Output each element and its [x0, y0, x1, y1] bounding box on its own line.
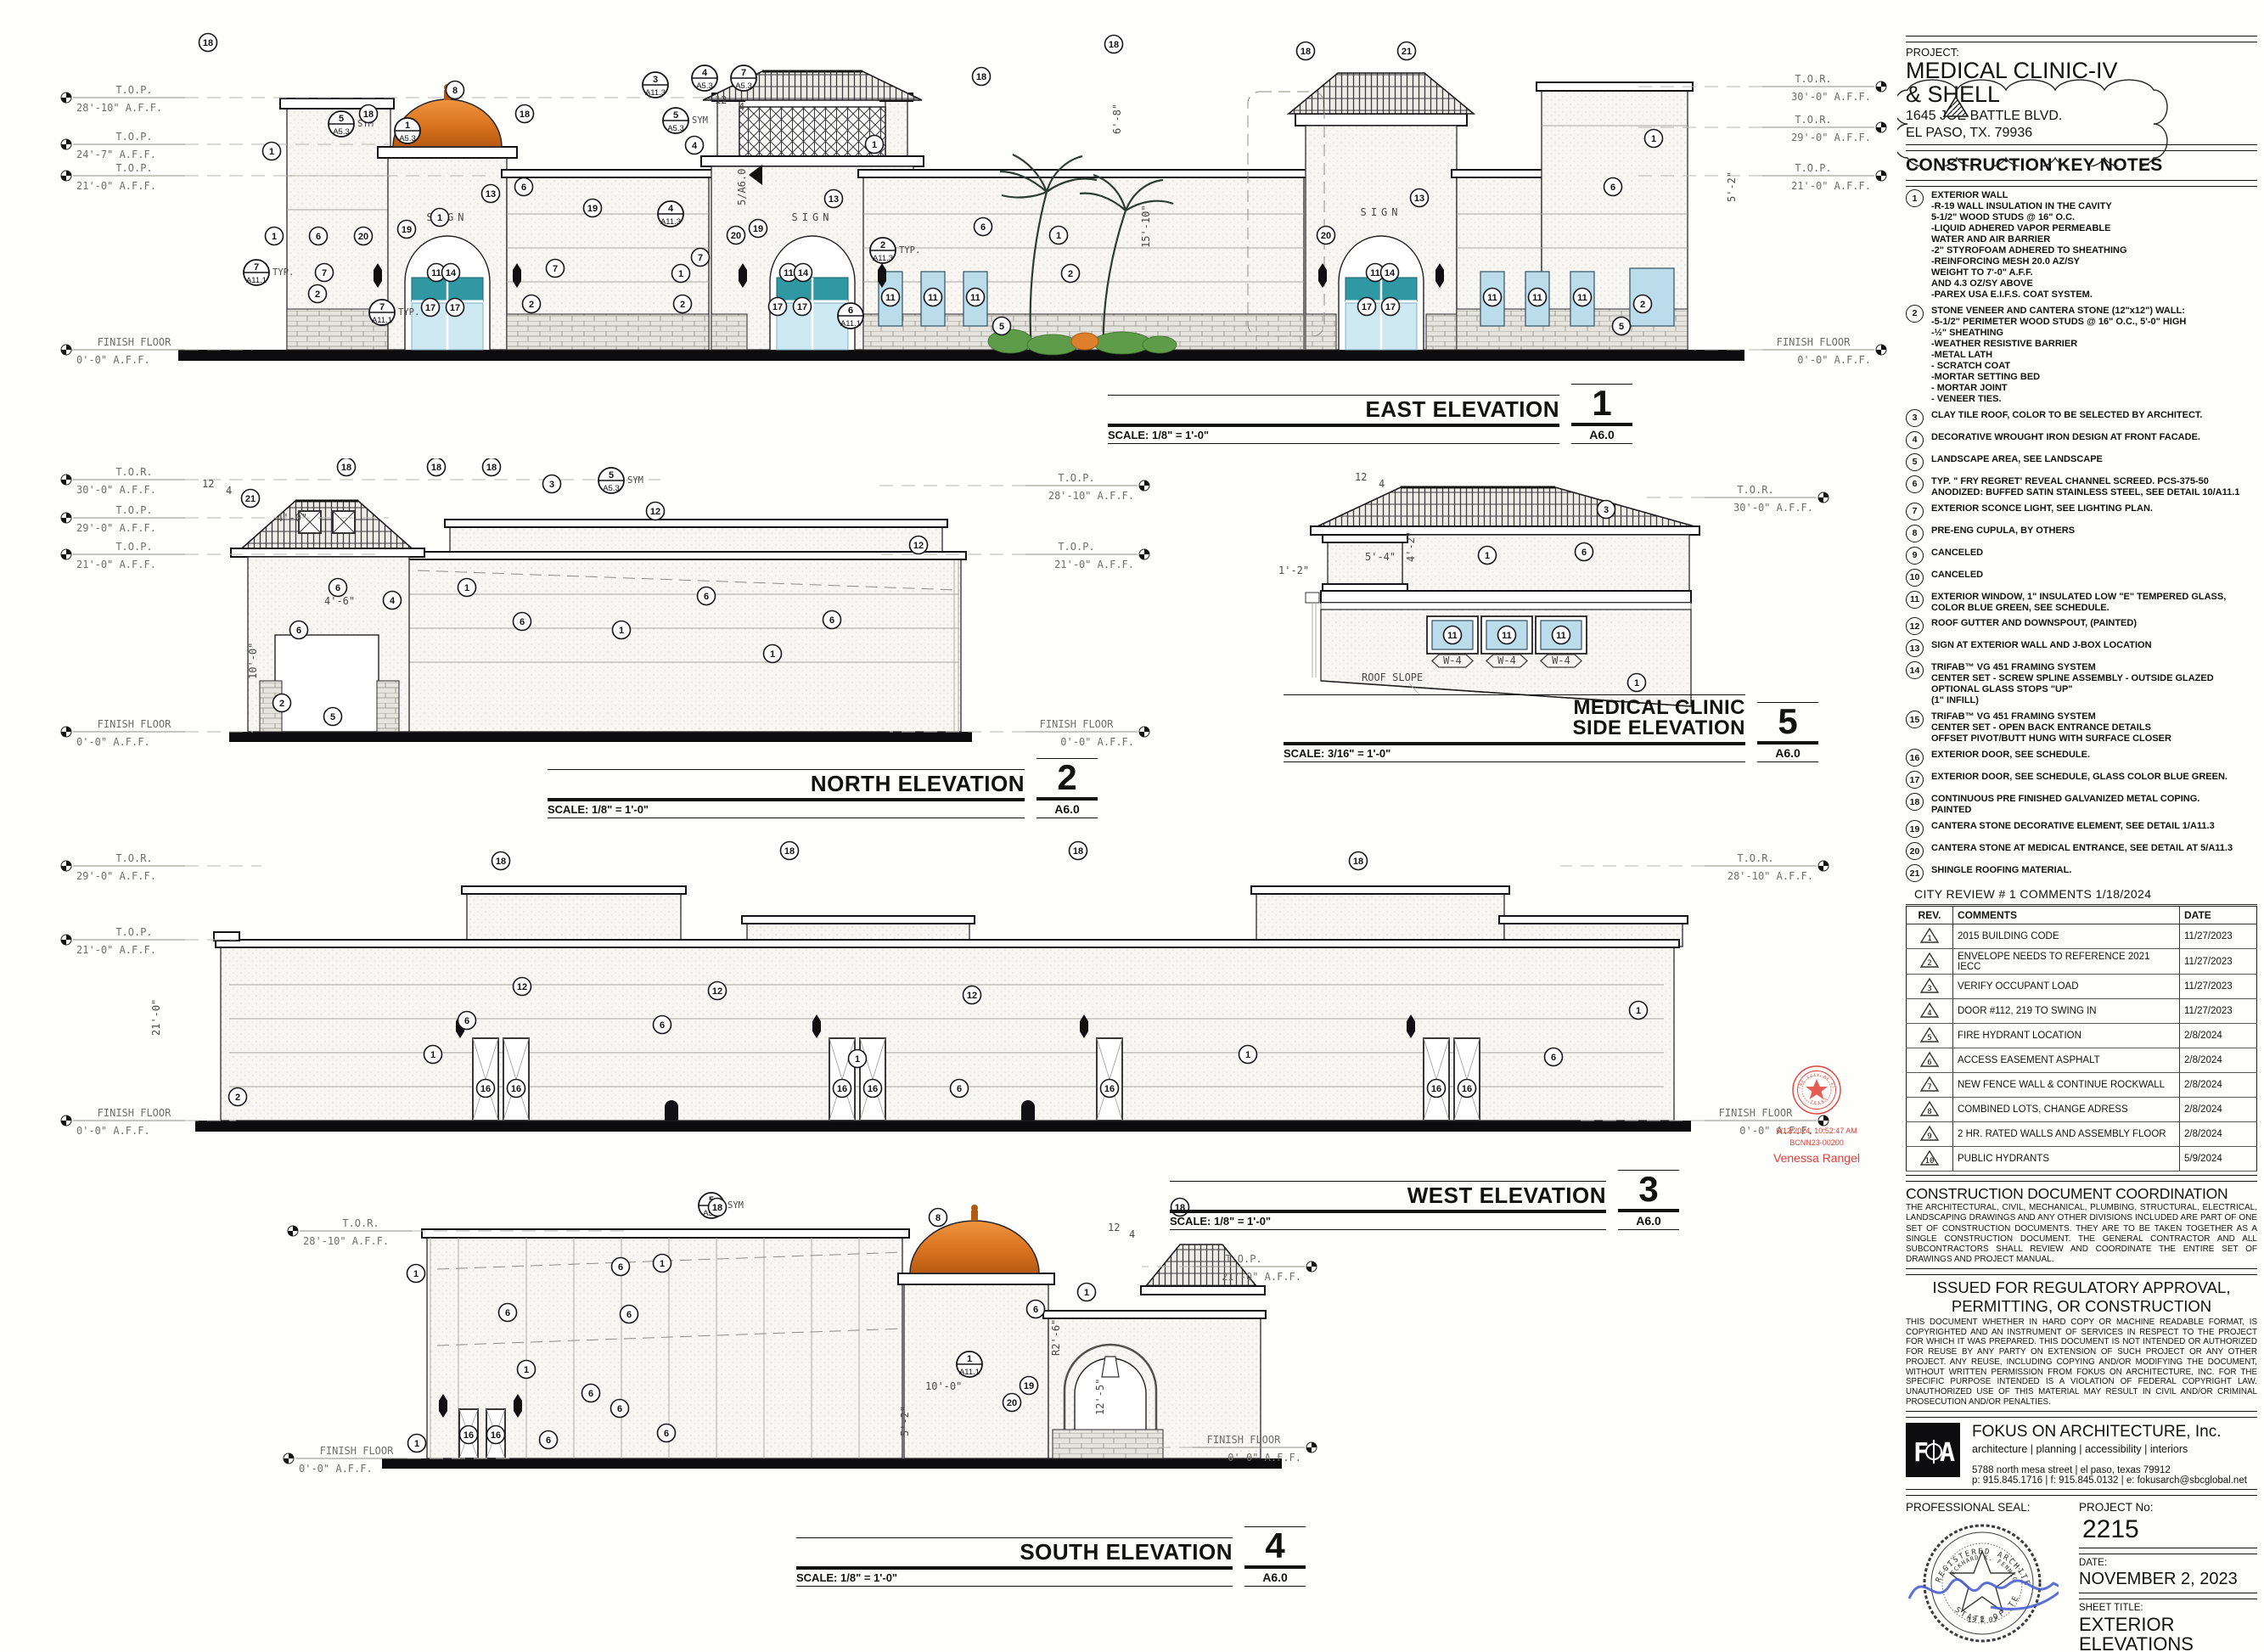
- detail-number: 1: [1571, 385, 1632, 426]
- svg-text:28'-10" A.F.F.: 28'-10" A.F.F.: [1048, 490, 1134, 502]
- svg-text:4: 4: [1129, 1228, 1135, 1240]
- revision-row: 5FIRE HYDRANT LOCATION2/8/2024: [1907, 1024, 2257, 1048]
- project-no-label: PROJECT No:: [2079, 1501, 2257, 1514]
- firm-contact: p: 915.845.1716 | f: 915.845.0132 | e: f…: [1972, 1475, 2247, 1486]
- coordination-title: CONSTRUCTION DOCUMENT COORDINATION: [1906, 1185, 2257, 1203]
- svg-text:T.O.R.: T.O.R.: [1795, 73, 1831, 85]
- svg-text:20: 20: [731, 231, 741, 241]
- svg-text:29'-0" A.F.F.: 29'-0" A.F.F.: [76, 522, 156, 534]
- svg-text:SIGN: SIGN: [792, 211, 834, 223]
- svg-text:16: 16: [1104, 1084, 1115, 1094]
- divider: [2079, 1593, 2257, 1599]
- revision-header-row: REV. COMMENTS DATE: [1907, 906, 2257, 924]
- svg-text:A11.1: A11.1: [840, 319, 861, 329]
- svg-text:11: 11: [1556, 631, 1566, 641]
- svg-text:T.O.P.: T.O.P.: [1225, 1253, 1261, 1265]
- svg-text:2: 2: [1068, 269, 1073, 279]
- east-elevation-title: EAST ELEVATION SCALE: 1/8" = 1'-0" 1 A6.…: [1108, 384, 1632, 444]
- svg-text:A5.3: A5.3: [399, 134, 416, 143]
- svg-text:18: 18: [712, 1203, 722, 1213]
- svg-text:4: 4: [1927, 1009, 1931, 1018]
- west-elevation-drawing: T.O.R.29'-0" A.F.F.T.O.P.21'-0" A.F.F.FI…: [25, 840, 1859, 1180]
- svg-text:T.O.R.: T.O.R.: [1737, 484, 1773, 496]
- rev-triangle-icon: 5: [1919, 1026, 1940, 1043]
- firm-block: F A FOKUS ON ARCHITECTURE, Inc. architec…: [1906, 1423, 2257, 1486]
- svg-text:W-4: W-4: [1497, 655, 1516, 666]
- svg-text:20: 20: [1007, 1398, 1017, 1408]
- svg-text:21'-0" A.F.F.: 21'-0" A.F.F.: [76, 180, 156, 192]
- svg-text:T.O.P.: T.O.P.: [115, 504, 152, 516]
- svg-text:29'-0" A.F.F.: 29'-0" A.F.F.: [1791, 132, 1871, 143]
- svg-text:1'-2": 1'-2": [1278, 565, 1309, 576]
- svg-text:FINISH FLOOR: FINISH FLOOR: [98, 336, 171, 348]
- divider: [2079, 1548, 2257, 1554]
- svg-text:1: 1: [524, 1365, 529, 1375]
- svg-text:19: 19: [402, 225, 412, 235]
- svg-text:2: 2: [279, 699, 284, 709]
- svg-text:17: 17: [772, 302, 783, 312]
- stamp-permit-number: BCNN23-00200: [1757, 1138, 1876, 1147]
- svg-text:2: 2: [680, 300, 685, 310]
- svg-text:12: 12: [712, 986, 722, 997]
- svg-text:4: 4: [226, 485, 232, 497]
- svg-text:A11.3: A11.3: [660, 217, 681, 227]
- north-elevation-title: NORTH ELEVATION SCALE: 1/8" = 1'-0" 2 A6…: [548, 758, 1098, 818]
- svg-text:1: 1: [1084, 1288, 1089, 1298]
- svg-text:21: 21: [1402, 47, 1412, 57]
- key-note: 11EXTERIOR WINDOW, 1" INSULATED LOW "E" …: [1906, 592, 2257, 614]
- svg-text:6: 6: [335, 583, 340, 593]
- svg-text:0'-0" A.F.F.: 0'-0" A.F.F.: [76, 1125, 150, 1137]
- divider: [1906, 180, 2257, 187]
- svg-text:12: 12: [202, 478, 214, 490]
- svg-text:FINISH FLOOR: FINISH FLOOR: [1040, 718, 1114, 730]
- svg-text:11: 11: [1487, 293, 1497, 303]
- svg-text:4: 4: [1379, 478, 1385, 490]
- sheet-ref: A6.0: [1618, 1212, 1679, 1229]
- svg-text:13: 13: [486, 189, 496, 199]
- svg-text:6: 6: [704, 592, 709, 602]
- svg-text:1: 1: [619, 626, 624, 636]
- revision-row: 10PUBLIC HYDRANTS5/9/2024: [1907, 1147, 2257, 1172]
- key-note: 10CANCELED: [1906, 570, 2257, 587]
- detail-number: 4: [1244, 1527, 1306, 1569]
- svg-text:17: 17: [1362, 302, 1372, 312]
- svg-text:1: 1: [269, 147, 274, 157]
- svg-text:5: 5: [339, 114, 344, 124]
- svg-text:7: 7: [322, 268, 327, 278]
- svg-text:W-4: W-4: [1443, 655, 1462, 666]
- sheet-title: EXTERIOR ELEVATIONS: [2079, 1615, 2257, 1652]
- foa-logo: F A: [1906, 1423, 1960, 1477]
- svg-text:T.O.R.: T.O.R.: [342, 1217, 379, 1229]
- svg-text:6: 6: [617, 1404, 622, 1414]
- svg-text:24'-7" A.F.F.: 24'-7" A.F.F.: [76, 149, 156, 160]
- svg-text:A11.3: A11.3: [873, 254, 893, 263]
- svg-text:4: 4: [739, 101, 744, 113]
- svg-text:30'-0" A.F.F.: 30'-0" A.F.F.: [1733, 502, 1813, 514]
- svg-text:18: 18: [341, 463, 351, 473]
- svg-text:FINISH FLOOR: FINISH FLOOR: [1207, 1434, 1281, 1446]
- divider: [1906, 1175, 2257, 1182]
- svg-text:5: 5: [1619, 322, 1624, 332]
- svg-text:4: 4: [702, 68, 708, 78]
- svg-text:3: 3: [1927, 985, 1931, 993]
- svg-text:18: 18: [1073, 846, 1083, 857]
- svg-text:6'-8": 6'-8": [1111, 104, 1123, 134]
- detail-number: 2: [1036, 759, 1098, 801]
- divider: [1906, 1411, 2257, 1418]
- svg-text:18: 18: [520, 110, 530, 120]
- rev-triangle-icon: 1: [1919, 927, 1940, 944]
- svg-text:A5.3: A5.3: [667, 124, 684, 133]
- svg-text:18: 18: [496, 857, 506, 867]
- svg-text:0'-0" A.F.F.: 0'-0" A.F.F.: [299, 1463, 373, 1475]
- scale-south: SCALE: 1/8" = 1'-0": [796, 1570, 1233, 1587]
- city-review-note: CITY REVIEW # 1 COMMENTS 1/18/2024: [1914, 887, 2257, 901]
- svg-text:A5.3: A5.3: [603, 484, 620, 493]
- svg-text:2: 2: [529, 300, 534, 310]
- svg-text:2: 2: [1640, 300, 1645, 310]
- svg-text:30'-0" A.F.F.: 30'-0" A.F.F.: [76, 484, 156, 496]
- svg-text:16: 16: [480, 1084, 491, 1094]
- svg-text:8: 8: [1927, 1108, 1931, 1116]
- svg-text:18: 18: [1353, 857, 1363, 867]
- svg-text:18: 18: [976, 72, 986, 82]
- svg-text:FINISH FLOOR: FINISH FLOOR: [320, 1445, 394, 1457]
- svg-text:FINISH FLOOR: FINISH FLOOR: [98, 718, 171, 730]
- svg-text:21: 21: [245, 494, 256, 504]
- title-east: EAST ELEVATION: [1108, 398, 1559, 427]
- date-label: DATE:: [2079, 1558, 2257, 1568]
- svg-text:11: 11: [1370, 268, 1380, 278]
- svg-text:3: 3: [653, 75, 658, 85]
- scale-north: SCALE: 1/8" = 1'-0": [548, 801, 1025, 818]
- svg-text:18: 18: [784, 846, 795, 857]
- revision-row: 8COMBINED LOTS, CHANGE ADRESS2/8/2024: [1907, 1098, 2257, 1122]
- svg-text:30'-0" A.F.F.: 30'-0" A.F.F.: [1791, 91, 1871, 103]
- svg-text:1: 1: [413, 1269, 419, 1279]
- svg-text:6: 6: [1581, 548, 1587, 558]
- svg-text:1: 1: [1245, 1050, 1250, 1060]
- sheet-ref: A6.0: [1244, 1569, 1306, 1586]
- date-value: NOVEMBER 2, 2023: [2079, 1570, 2257, 1589]
- rev-triangle-icon: 8: [1919, 1100, 1940, 1117]
- svg-text:16: 16: [868, 1084, 878, 1094]
- svg-text:1: 1: [464, 583, 469, 593]
- revision-cloud: [1897, 71, 2186, 166]
- key-note: 4DECORATIVE WROUGHT IRON DESIGN AT FRONT…: [1906, 432, 2257, 449]
- sheet-ref: A6.0: [1036, 801, 1098, 818]
- svg-text:A11.1: A11.1: [959, 1368, 980, 1377]
- svg-text:11: 11: [1532, 293, 1542, 303]
- svg-text:2: 2: [235, 1093, 240, 1103]
- key-note: 19CANTERA STONE DECORATIVE ELEMENT, SEE …: [1906, 821, 2257, 838]
- svg-text:6: 6: [660, 1020, 665, 1031]
- scale-west: SCALE: 1/8" = 1'-0": [1170, 1213, 1606, 1230]
- key-note: 14TRIFAB™ VG 451 FRAMING SYSTEM CENTER S…: [1906, 662, 2257, 706]
- svg-text:6: 6: [626, 1310, 632, 1320]
- svg-text:6: 6: [464, 1016, 469, 1026]
- svg-text:2: 2: [1927, 959, 1931, 968]
- firm-tagline: architecture | planning | accessibility …: [1972, 1443, 2247, 1455]
- svg-text:3: 3: [549, 480, 554, 490]
- svg-text:5'-2": 5'-2": [899, 1406, 911, 1436]
- key-note: 13SIGN AT EXTERIOR WALL AND J-BOX LOCATI…: [1906, 640, 2257, 657]
- svg-text:11: 11: [1577, 293, 1587, 303]
- svg-text:20: 20: [358, 232, 368, 242]
- city-approval-stamp: THE CITY OF EL PASO TEXAS 6/12/2024, 10:…: [1757, 1063, 1876, 1165]
- svg-text:16: 16: [491, 1430, 501, 1441]
- svg-text:11: 11: [928, 293, 938, 303]
- svg-text:15'-10": 15'-10": [1140, 205, 1152, 248]
- project-no: 2215: [2082, 1515, 2257, 1544]
- svg-text:T.O.R.: T.O.R.: [115, 852, 152, 864]
- svg-text:7: 7: [379, 302, 385, 312]
- svg-text:T.O.P.: T.O.P.: [115, 84, 152, 96]
- svg-text:W-4: W-4: [1552, 655, 1570, 666]
- svg-text:21'-0": 21'-0": [150, 999, 162, 1036]
- side-elevation-title: MEDICAL CLINIC SIDE ELEVATION SCALE: 3/1…: [1284, 694, 1818, 762]
- svg-text:6: 6: [316, 232, 321, 242]
- svg-text:1: 1: [405, 121, 410, 131]
- svg-text:1: 1: [430, 1050, 435, 1060]
- svg-text:5: 5: [673, 110, 678, 121]
- svg-text:T.O.R.: T.O.R.: [1737, 852, 1773, 864]
- svg-text:14: 14: [1385, 268, 1396, 278]
- svg-text:6: 6: [664, 1429, 669, 1439]
- svg-text:21'-0" A.F.F.: 21'-0" A.F.F.: [1222, 1271, 1301, 1283]
- svg-text:5: 5: [330, 712, 335, 722]
- svg-text:1: 1: [1927, 935, 1931, 943]
- svg-text:21'-0" A.F.F.: 21'-0" A.F.F.: [76, 944, 156, 956]
- svg-text:1: 1: [1634, 678, 1639, 688]
- svg-text:1: 1: [1056, 231, 1061, 241]
- svg-text:17: 17: [450, 303, 460, 313]
- svg-text:6: 6: [980, 222, 986, 233]
- svg-text:12: 12: [913, 541, 924, 551]
- rev-triangle-icon: 9: [1919, 1125, 1940, 1142]
- svg-text:5'-4": 5'-4": [1365, 551, 1396, 563]
- issued-title: ISSUED FOR REGULATORY APPROVAL, PERMITTI…: [1906, 1278, 2257, 1316]
- svg-text:18: 18: [486, 463, 497, 473]
- svg-text:6: 6: [505, 1308, 510, 1318]
- svg-text:21'-0" A.F.F.: 21'-0" A.F.F.: [1054, 559, 1134, 570]
- south-geometry: [382, 1205, 1282, 1469]
- svg-text:FINISH FLOOR: FINISH FLOOR: [1777, 336, 1851, 348]
- svg-text:T.O.P.: T.O.P.: [1795, 162, 1831, 174]
- svg-text:6: 6: [1927, 1059, 1931, 1067]
- svg-text:10'-0": 10'-0": [247, 643, 259, 679]
- svg-text:A5.3: A5.3: [333, 127, 350, 137]
- svg-text:17: 17: [425, 303, 435, 313]
- svg-text:8: 8: [452, 86, 458, 96]
- svg-text:T.O.P.: T.O.P.: [115, 926, 152, 938]
- rev-triangle-icon: 2: [1919, 952, 1940, 969]
- svg-text:4'-0": 4'-0": [277, 512, 307, 524]
- svg-text:28'-10" A.F.F.: 28'-10" A.F.F.: [76, 102, 162, 114]
- svg-text:0'-0" A.F.F.: 0'-0" A.F.F.: [1797, 354, 1871, 366]
- svg-text:SYM: SYM: [692, 115, 708, 126]
- revision-row: 3VERIFY OCCUPANT LOAD11/27/2023: [1907, 975, 2257, 999]
- svg-text:1: 1: [1636, 1006, 1641, 1016]
- svg-text:20: 20: [1321, 231, 1331, 241]
- svg-text:18: 18: [431, 463, 441, 473]
- stamp-datetime: 6/12/2024, 10:52:47 AM: [1757, 1127, 1876, 1135]
- svg-text:7: 7: [254, 262, 259, 273]
- svg-text:0'-0" A.F.F.: 0'-0" A.F.F.: [76, 736, 150, 748]
- divider: [1906, 1268, 2257, 1275]
- svg-text:T.O.P.: T.O.P.: [1058, 541, 1094, 553]
- svg-text:0'-0" A.F.F.: 0'-0" A.F.F.: [1228, 1452, 1301, 1464]
- svg-text:A5.3: A5.3: [735, 81, 752, 91]
- svg-text:TYP.: TYP.: [272, 267, 294, 278]
- svg-text:5/A6.0: 5/A6.0: [736, 169, 748, 205]
- svg-text:3: 3: [1604, 505, 1609, 515]
- west-elevation-title: WEST ELEVATION SCALE: 1/8" = 1'-0" 3 A6.…: [1170, 1170, 1679, 1230]
- svg-text:6: 6: [618, 1262, 623, 1273]
- svg-text:21'-0" A.F.F.: 21'-0" A.F.F.: [76, 559, 156, 570]
- divider: [1906, 1489, 2257, 1496]
- svg-text:16: 16: [1431, 1084, 1441, 1094]
- svg-text:12: 12: [967, 991, 977, 1001]
- revision-row: 12015 BUILDING CODE11/27/2023: [1907, 924, 2257, 949]
- sheet-ref: A6.0: [1757, 745, 1818, 761]
- svg-text:A11.1: A11.1: [372, 316, 392, 325]
- east-elevation-drawing: T.O.P.28'-10" A.F.F.T.O.P.24'-7" A.F.F.T…: [25, 25, 1893, 424]
- svg-text:19: 19: [587, 204, 598, 214]
- svg-text:4: 4: [668, 204, 674, 214]
- svg-text:6: 6: [1551, 1053, 1556, 1063]
- firm-name: FOKUS ON ARCHITECTURE, Inc.: [1972, 1423, 2247, 1441]
- svg-text:10: 10: [1925, 1157, 1935, 1166]
- svg-text:R2'-6": R2'-6": [1050, 1319, 1062, 1356]
- svg-text:5: 5: [1927, 1034, 1931, 1042]
- title-block-panel: PROJECT: MEDICAL CLINIC-IV & SHELL 1645 …: [1906, 32, 2257, 1652]
- revision-table: REV. COMMENTS DATE 12015 BUILDING CODE11…: [1906, 904, 2257, 1172]
- title-block-bottom: PROFESSIONAL SEAL: REGISTERED ARCHITECT …: [1906, 1499, 2257, 1652]
- key-note: 16EXTERIOR DOOR, SEE SCHEDULE.: [1906, 750, 2257, 767]
- svg-text:28'-10" A.F.F.: 28'-10" A.F.F.: [1727, 870, 1813, 882]
- svg-text:29'-0" A.F.F.: 29'-0" A.F.F.: [76, 870, 156, 882]
- svg-text:A11.3: A11.3: [645, 88, 666, 98]
- svg-text:18: 18: [203, 38, 213, 48]
- revision-row: 6ACCESS EASEMENT ASPHALT2/8/2024: [1907, 1048, 2257, 1073]
- svg-text:12: 12: [517, 982, 527, 992]
- drawing-sheet: T.O.P.28'-10" A.F.F.T.O.P.24'-7" A.F.F.T…: [0, 0, 2264, 1652]
- svg-text:FINISH FLOOR: FINISH FLOOR: [98, 1107, 171, 1119]
- svg-text:16: 16: [837, 1084, 847, 1094]
- svg-text:5: 5: [999, 322, 1004, 332]
- detail-number: 5: [1757, 703, 1818, 745]
- scale-east: SCALE: 1/8" = 1'-0": [1108, 427, 1559, 444]
- rev-triangle-icon: 4: [1919, 1002, 1940, 1019]
- south-elevation-drawing: T.O.R.28'-10" A.F.F.FINISH FLOOR0'-0" A.…: [170, 1188, 1392, 1528]
- svg-text:5'-2": 5'-2": [1726, 171, 1738, 202]
- svg-text:11: 11: [1447, 631, 1458, 641]
- svg-text:A: A: [1940, 1438, 1955, 1468]
- key-note: 7EXTERIOR SCONCE LIGHT, SEE LIGHTING PLA…: [1906, 503, 2257, 520]
- svg-text:6: 6: [546, 1436, 551, 1446]
- revision-row: 2ENVELOPE NEEDS TO REFERENCE 2021 IECC11…: [1907, 949, 2257, 975]
- svg-text:13: 13: [829, 194, 839, 205]
- svg-text:17: 17: [1385, 302, 1396, 312]
- svg-text:19: 19: [753, 224, 763, 234]
- svg-text:ROOF SLOPE: ROOF SLOPE: [1362, 671, 1423, 683]
- svg-text:6: 6: [957, 1084, 962, 1094]
- svg-text:5: 5: [609, 470, 614, 480]
- svg-text:T.O.P.: T.O.P.: [115, 162, 152, 174]
- revision-row: 7NEW FENCE WALL & CONTINUE ROCKWALL2/8/2…: [1907, 1073, 2257, 1098]
- city-seal-icon: THE CITY OF EL PASO TEXAS: [1789, 1063, 1844, 1117]
- title-north: NORTH ELEVATION: [548, 773, 1025, 801]
- revision-row: 4DOOR #112, 219 TO SWING IN11/27/2023: [1907, 999, 2257, 1024]
- firm-address: 5788 north mesa street | el paso, texas …: [1972, 1465, 2247, 1475]
- svg-text:11: 11: [784, 268, 794, 278]
- svg-text:1: 1: [437, 213, 442, 223]
- svg-text:A11.1: A11.1: [246, 276, 267, 285]
- seal-label: PROFESSIONAL SEAL:: [1906, 1501, 2067, 1514]
- svg-text:13: 13: [1414, 194, 1424, 204]
- svg-text:2: 2: [315, 289, 320, 300]
- svg-text:0'-0" A.F.F.: 0'-0" A.F.F.: [76, 354, 150, 366]
- key-note: 1EXTERIOR WALL -R-19 WALL INSULATION IN …: [1906, 190, 2257, 301]
- svg-text:16: 16: [1462, 1084, 1472, 1094]
- svg-text:8: 8: [935, 1213, 941, 1223]
- svg-text:6: 6: [1033, 1305, 1038, 1315]
- svg-text:11: 11: [431, 268, 441, 278]
- svg-text:SIGN: SIGN: [1361, 206, 1402, 218]
- svg-text:0'-0" A.F.F.: 0'-0" A.F.F.: [1060, 736, 1134, 748]
- svg-text:12'-5": 12'-5": [1094, 1379, 1106, 1415]
- key-note: 8PRE-ENG CUPULA, BY OTHERS: [1906, 525, 2257, 542]
- issued-body: THIS DOCUMENT WHETHER IN HARD COPY OR MA…: [1906, 1318, 2257, 1408]
- svg-text:10'-0": 10'-0": [925, 1380, 962, 1392]
- svg-text:1: 1: [414, 1439, 419, 1449]
- key-note: 5LANDSCAPE AREA, SEE LANDSCAPE: [1906, 454, 2257, 471]
- project-label: PROJECT:: [1906, 46, 2257, 59]
- svg-text:18: 18: [363, 110, 374, 120]
- east-geometry: [64, 71, 1744, 361]
- svg-text:21'-0" A.F.F.: 21'-0" A.F.F.: [1791, 180, 1871, 192]
- professional-seal: REGISTERED ARCHITECT ECKHARD K. FENNIG 1…: [1906, 1515, 2059, 1652]
- svg-text:6: 6: [588, 1389, 593, 1399]
- key-note: 21SHINGLE ROOFING MATERIAL.: [1906, 865, 2257, 882]
- coordination-body: THE ARCHITECTURAL, CIVIL, MECHANICAL, PL…: [1906, 1203, 2257, 1265]
- svg-text:6: 6: [520, 617, 525, 627]
- svg-text:17: 17: [797, 302, 807, 312]
- svg-text:11: 11: [970, 293, 980, 303]
- svg-text:18: 18: [1109, 40, 1119, 50]
- svg-text:T.O.P.: T.O.P.: [115, 131, 152, 143]
- rev-triangle-icon: 7: [1919, 1076, 1940, 1093]
- detail-number: 3: [1618, 1171, 1679, 1212]
- south-elevation-title: SOUTH ELEVATION SCALE: 1/8" = 1'-0" 4 A6…: [796, 1526, 1306, 1587]
- svg-text:19: 19: [1024, 1381, 1034, 1391]
- svg-text:1: 1: [272, 232, 277, 242]
- svg-text:7: 7: [1927, 1083, 1931, 1092]
- scale-side: SCALE: 3/16" = 1'-0": [1284, 745, 1745, 762]
- svg-text:4: 4: [692, 141, 698, 151]
- svg-text:1: 1: [872, 140, 877, 150]
- svg-text:1: 1: [770, 649, 775, 660]
- svg-text:1: 1: [660, 1259, 665, 1269]
- svg-text:2: 2: [880, 240, 885, 250]
- title-south: SOUTH ELEVATION: [796, 1541, 1233, 1570]
- svg-text:1: 1: [967, 1354, 972, 1364]
- rev-triangle-icon: 3: [1919, 977, 1940, 994]
- sheet-title-label: SHEET TITLE:: [2079, 1603, 2257, 1613]
